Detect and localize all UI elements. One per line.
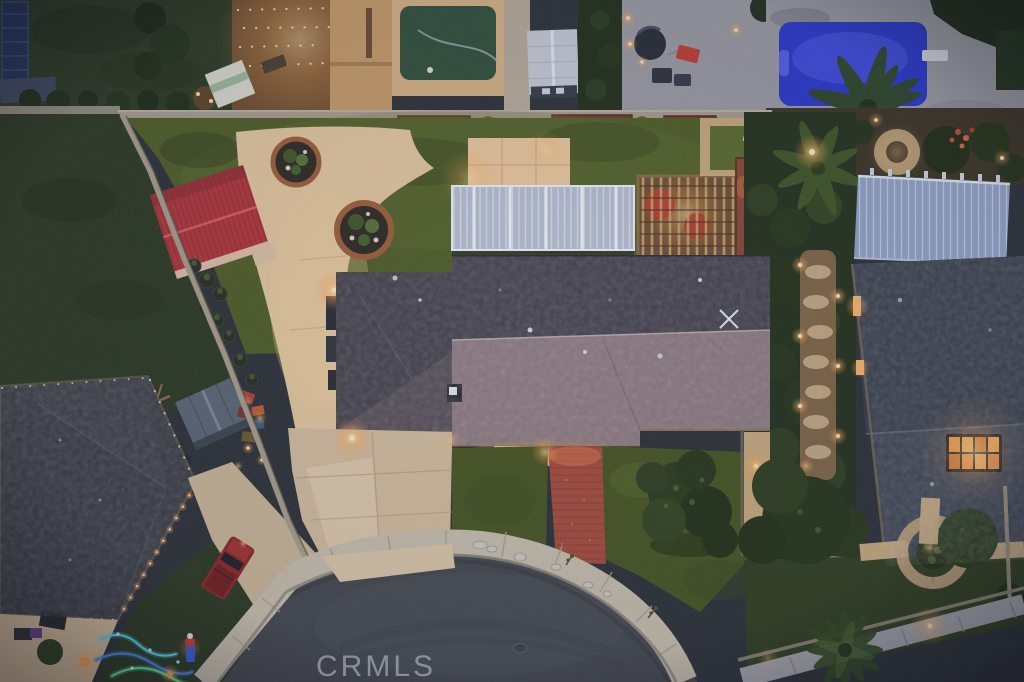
vignette — [0, 0, 1024, 682]
photo-overlays — [0, 0, 1024, 682]
aerial-photo-canvas: CRMLS — [0, 0, 1024, 682]
aerial-photo: CRMLS — [0, 0, 1024, 682]
crmls-watermark: CRMLS — [316, 650, 436, 682]
